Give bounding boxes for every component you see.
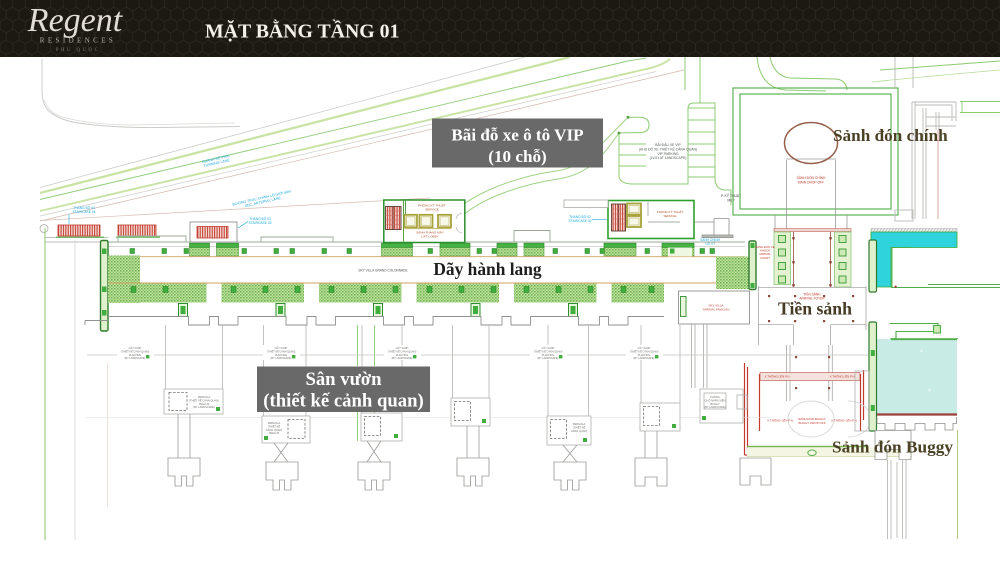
svg-text:Sảnh đón Buggy: Sảnh đón Buggy bbox=[832, 438, 953, 457]
svg-text:Tiền sảnh: Tiền sảnh bbox=[778, 299, 852, 319]
svg-text:MẶT BẰNG TẦNG 01: MẶT BẰNG TẦNG 01 bbox=[205, 21, 399, 43]
svg-text:STAIRCASE 02: STAIRCASE 02 bbox=[568, 219, 591, 223]
svg-text:(LV.01 AT LANDSCAPE): (LV.01 AT LANDSCAPE) bbox=[650, 156, 687, 160]
svg-text:PERGOLA: PERGOLA bbox=[268, 421, 281, 425]
svg-text:(BY LANDSCAPE): (BY LANDSCAPE) bbox=[538, 357, 559, 360]
svg-text:TRELLIS: TRELLIS bbox=[269, 431, 280, 435]
svg-text:Regent: Regent bbox=[27, 2, 124, 39]
svg-text:SKY VILLA GRAND COLONNADE: SKY VILLA GRAND COLONNADE bbox=[358, 269, 407, 273]
svg-text:LIFT LOBBY: LIFT LOBBY bbox=[421, 234, 438, 238]
svg-text:X.THÔNG LÊN P.N: X.THÔNG LÊN P.N bbox=[765, 374, 790, 379]
svg-text:(BY LANDSCAPE): (BY LANDSCAPE) bbox=[704, 405, 726, 409]
svg-text:SẢNH ĐÓN CHÍNH: SẢNH ĐÓN CHÍNH bbox=[797, 175, 826, 180]
svg-text:(BY LANDSCAPE): (BY LANDSCAPE) bbox=[125, 357, 146, 360]
svg-text:(BY LANDSCAPE): (BY LANDSCAPE) bbox=[271, 357, 292, 360]
svg-text:BUGGY DROP OFF: BUGGY DROP OFF bbox=[798, 421, 825, 425]
svg-text:(BY LANDSCAPE): (BY LANDSCAPE) bbox=[634, 357, 655, 360]
svg-text:Sân vườn: Sân vườn bbox=[305, 369, 382, 390]
svg-text:ARRIVAL PAVILION: ARRIVAL PAVILION bbox=[703, 308, 730, 312]
svg-text:PERGOLA: PERGOLA bbox=[198, 395, 211, 399]
svg-text:SERVICE: SERVICE bbox=[425, 207, 439, 211]
svg-text:TRELLIS: TRELLIS bbox=[199, 402, 210, 406]
svg-text:X.THÔNG LÊN P.N: X.THÔNG LÊN P.N bbox=[831, 418, 857, 423]
svg-text:STAIRCASE 04: STAIRCASE 04 bbox=[72, 210, 95, 214]
svg-text:Bãi đỗ xe ô tô VIP: Bãi đỗ xe ô tô VIP bbox=[451, 126, 583, 145]
svg-text:SERVICE: SERVICE bbox=[663, 214, 676, 218]
svg-text:Sảnh đón chính: Sảnh đón chính bbox=[833, 126, 948, 145]
svg-text:STAIRCASE 03: STAIRCASE 03 bbox=[248, 221, 271, 225]
svg-text:(thiết kế cảnh quan): (thiết kế cảnh quan) bbox=[263, 391, 423, 412]
svg-text:RESIDENCES: RESIDENCES bbox=[40, 37, 116, 45]
svg-text:Dãy hành lang: Dãy hành lang bbox=[433, 259, 542, 279]
svg-text:MEP: MEP bbox=[727, 198, 735, 202]
svg-text:(10 chỗ): (10 chỗ) bbox=[488, 147, 546, 166]
svg-text:(BY LANDSCAPE): (BY LANDSCAPE) bbox=[392, 357, 413, 360]
svg-text:P. KỸ THUẬT: P. KỸ THUẬT bbox=[721, 193, 741, 198]
svg-text:X.THÔNG LÊN P.N: X.THÔNG LÊN P.N bbox=[767, 418, 793, 423]
svg-text:PHU QUOC: PHU QUOC bbox=[56, 48, 101, 53]
svg-text:COURT: COURT bbox=[760, 256, 770, 260]
svg-text:PERGOLA: PERGOLA bbox=[573, 422, 586, 426]
svg-text:LỐI VT: LỐI VT bbox=[705, 241, 715, 246]
svg-text:BÃI ĐẬU XE VIP: BÃI ĐẬU XE VIP bbox=[655, 142, 681, 147]
svg-text:(BY LANDSCAPE): (BY LANDSCAPE) bbox=[193, 405, 215, 409]
svg-text:(KHU ĐỖ XE THIẾT KẾ CẢNH QUAN): (KHU ĐỖ XE THIẾT KẾ CẢNH QUAN) bbox=[639, 146, 697, 151]
svg-text:VIP PARKING: VIP PARKING bbox=[657, 152, 679, 156]
svg-text:MAIN DROP OFF: MAIN DROP OFF bbox=[798, 180, 824, 184]
svg-text:BUGGY: BUGGY bbox=[710, 402, 720, 406]
svg-text:X.THÔNG LÊN P.N: X.THÔNG LÊN P.N bbox=[830, 374, 855, 379]
